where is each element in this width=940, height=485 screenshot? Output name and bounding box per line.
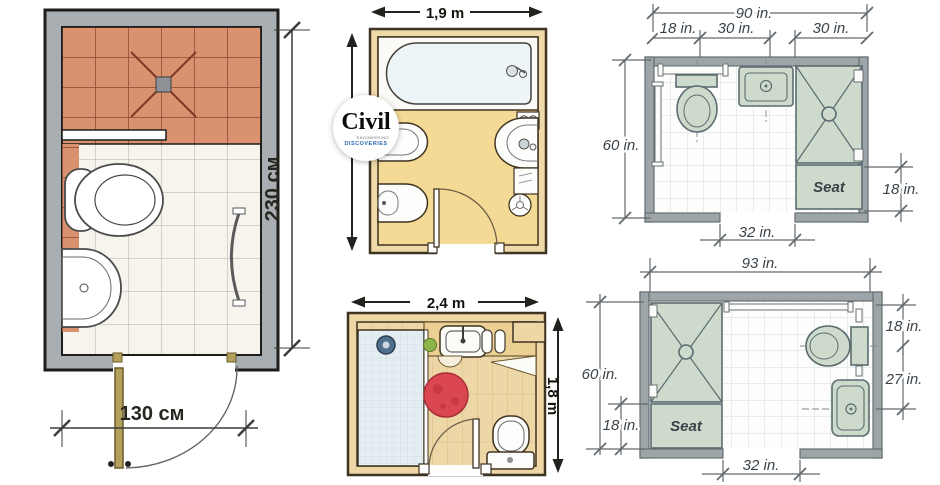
watermark-logo: Civil ENGINEERING DISCOVERIES [333, 95, 399, 161]
plan-right-bottom: 93 in. Seat [575, 250, 940, 485]
dim-seat-depth: 18 in. [864, 153, 919, 222]
rug [424, 373, 468, 417]
seat-label: Seat [670, 418, 703, 435]
dim-door: 32 in. [700, 224, 815, 247]
plan-right-top: 90 in. 18 in. 30 in. 30 in. [575, 0, 940, 250]
shower-seat: Seat [796, 165, 862, 209]
dim-seat-depth-label: 18 in. [603, 417, 640, 434]
dim-width-m: 1,9 m [371, 5, 543, 22]
dim-sink-centerline-label: 27 in. [885, 371, 923, 388]
dim-height-label: 60 in. [582, 366, 619, 383]
shower-drain-icon [822, 107, 836, 121]
dim-segments: 18 in. 30 in. 30 in. [647, 20, 873, 57]
plan-left-cm: 130 см 230 см [0, 0, 330, 485]
logo-tagline-discoveries: DISCOVERIES [344, 141, 387, 147]
bidet [378, 184, 428, 222]
dim-toilet-centerline: 18 in. [876, 294, 922, 355]
grab-bar [856, 309, 862, 322]
soap-dish-icon [424, 339, 437, 352]
wall-notch [513, 322, 545, 342]
dim-total-width-label: 93 in. [742, 255, 779, 272]
dim-height-label: 60 in. [603, 137, 640, 154]
seat-label: Seat [813, 179, 846, 196]
dim-sink-centerline: 27 in. [876, 346, 922, 420]
plan-mid-bottom: 2,4 m [330, 270, 575, 485]
bathroom-floor-plans-collage: 130 см 230 см 1,9 m [0, 0, 940, 485]
logo-wordmark: Civil [341, 110, 390, 134]
door-leaf [473, 419, 479, 468]
shelf [514, 168, 538, 194]
bathtub [378, 37, 538, 110]
dim-total-width: 93 in. [640, 255, 882, 292]
dim-toilet-zone-label: 18 in. [660, 20, 697, 37]
door-leaf [434, 189, 439, 247]
toilet [65, 164, 163, 236]
dim-door-label: 32 in. [743, 457, 780, 474]
towel-bar [724, 302, 853, 312]
dim-height-label: 1,8 m [544, 377, 561, 415]
shower-drain-icon [679, 345, 693, 359]
shower-seat: Seat [651, 404, 722, 448]
dim-door-label: 32 in. [739, 224, 776, 241]
dim-door: 32 in. [702, 457, 820, 482]
dim-width-label: 130 см [120, 403, 185, 425]
dim-width-m: 2,4 m [351, 295, 539, 312]
dim-shower-zone-label: 30 in. [813, 20, 850, 37]
dim-height-m: 1,8 m [544, 317, 564, 473]
logo-tagline-engineering: ENGINEERING [357, 135, 389, 140]
dim-height: 60 in. [603, 54, 651, 224]
sink [440, 326, 486, 357]
shower [649, 303, 722, 402]
round-fixture [509, 194, 531, 216]
shower [358, 330, 429, 466]
dim-height-label: 230 см [262, 157, 284, 222]
shower [796, 66, 863, 163]
dim-toilet-centerline-label: 18 in. [886, 318, 923, 335]
dim-width-label: 1,9 m [426, 5, 464, 22]
dim-sink-zone-label: 30 in. [718, 20, 755, 37]
dim-seat-depth-label: 18 in. [883, 181, 920, 198]
partition-shelf [62, 130, 166, 140]
dim-width-label: 2,4 m [427, 295, 465, 312]
